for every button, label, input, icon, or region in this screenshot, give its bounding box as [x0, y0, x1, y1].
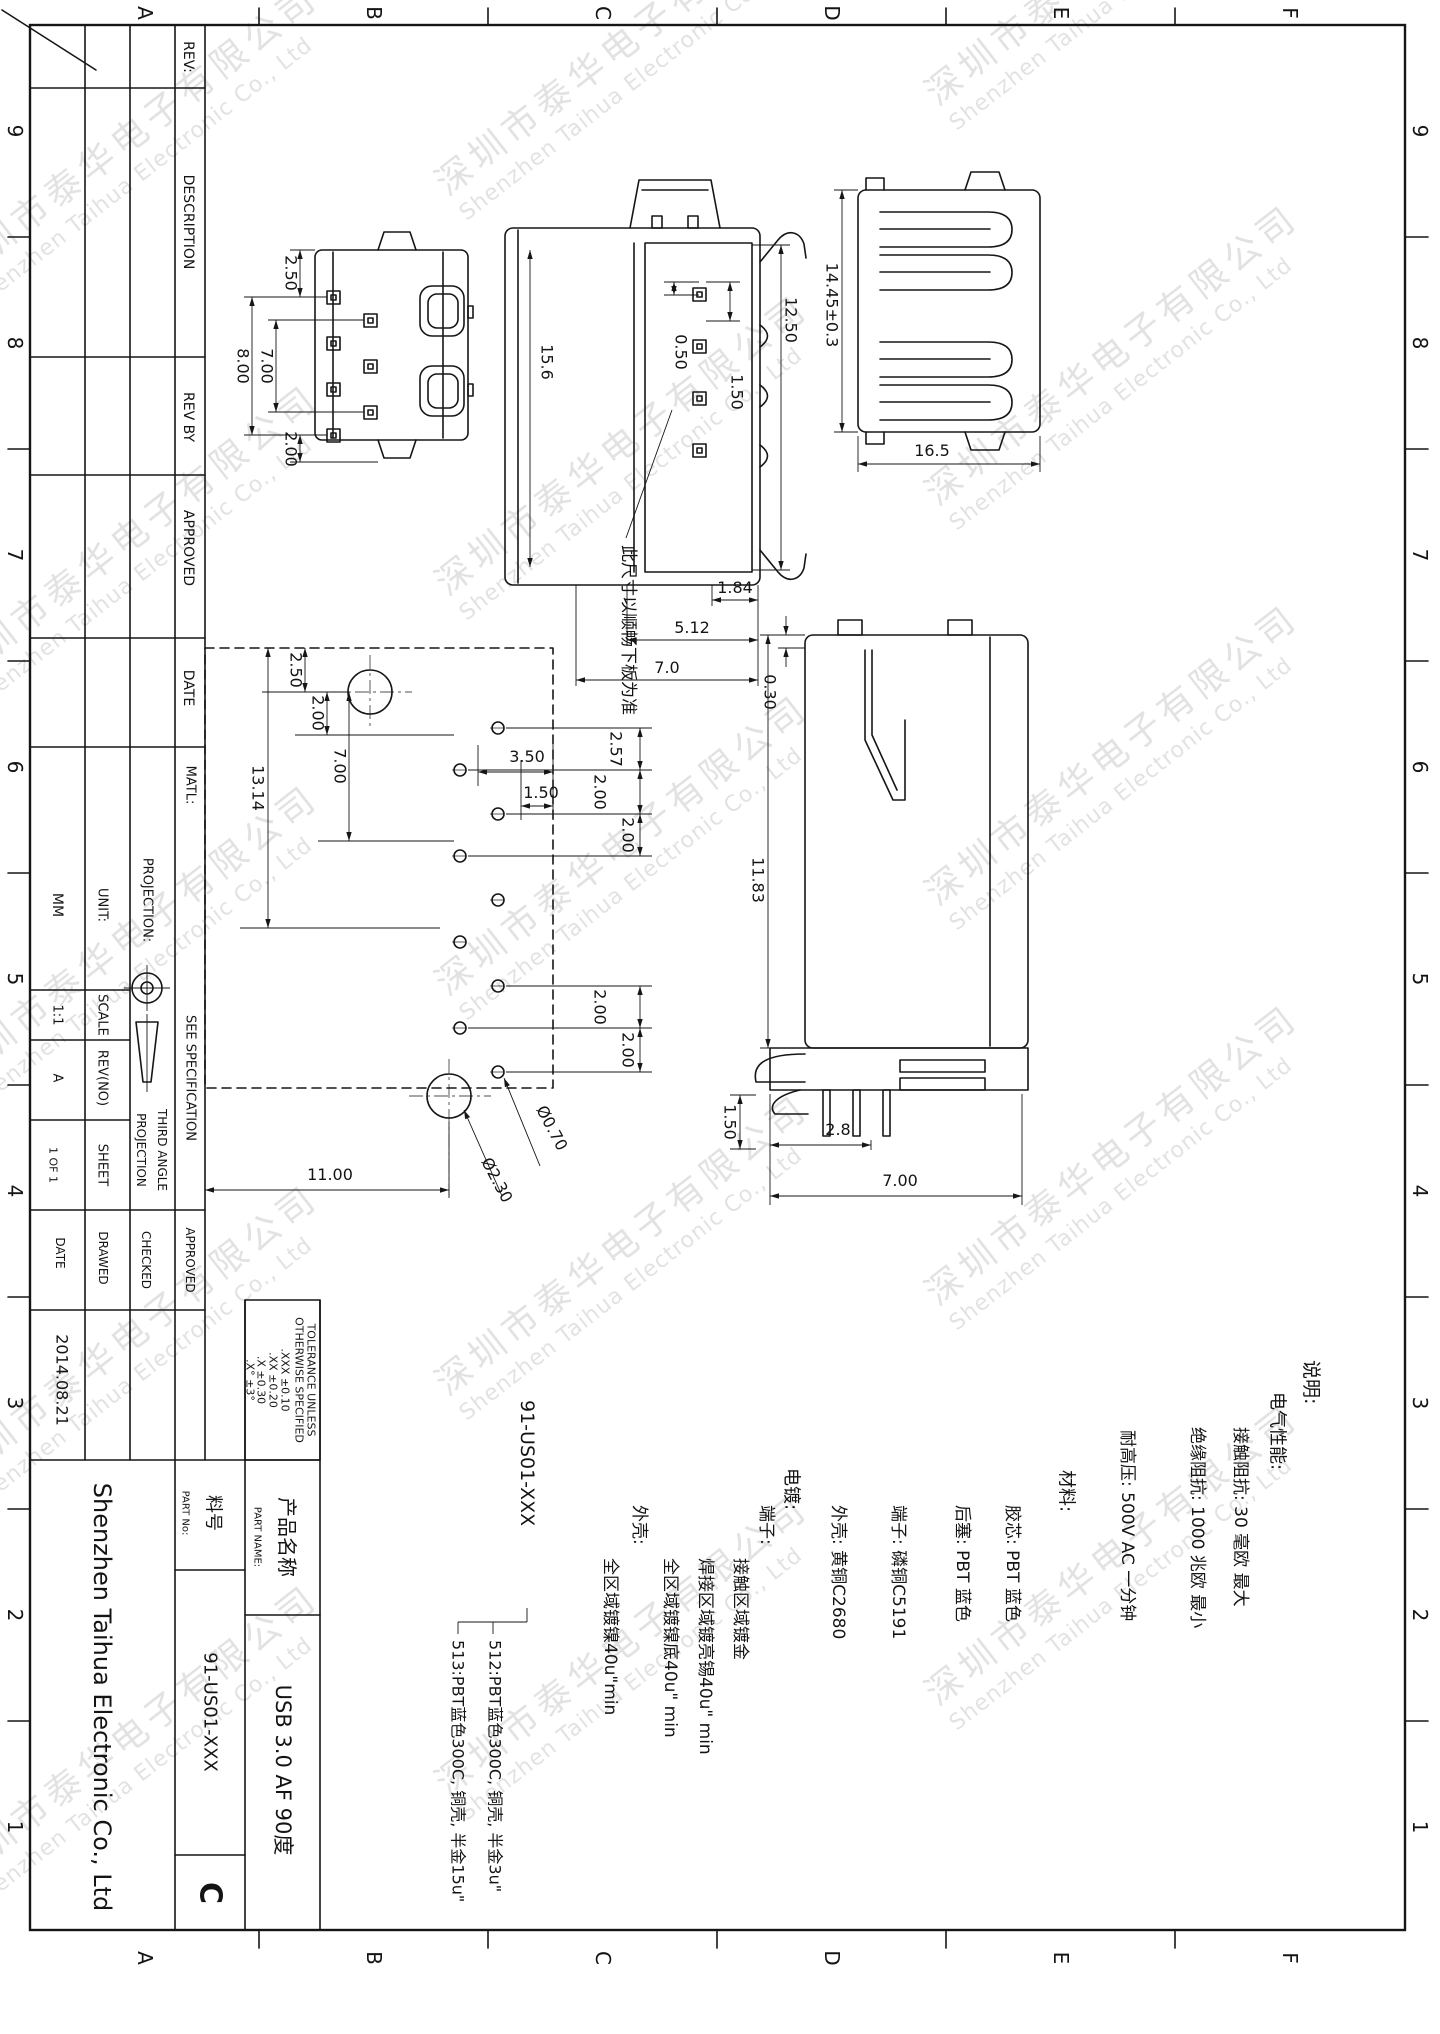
svg-text:端子: 磷铜C5191: 端子: 磷铜C5191	[888, 1505, 908, 1639]
dim: 2.50	[282, 255, 301, 291]
projection-label: PROJECTION:	[140, 858, 155, 942]
svg-text:.X° ±3°: .X° ±3°	[244, 1359, 257, 1401]
part-name-value: USB 3.0 AF 90度	[271, 1685, 295, 1856]
dim: 1.84	[717, 578, 753, 597]
dim: 2.00	[619, 1032, 638, 1068]
dim: 11.83	[749, 857, 768, 903]
svg-text:材料:: 材料:	[1056, 1470, 1077, 1512]
zone-number: 4	[3, 1185, 27, 1198]
zone-number: 2	[1408, 1609, 1432, 1622]
date-label: DATE	[53, 1237, 67, 1268]
dim: 2.57	[607, 731, 626, 767]
dim: 2.00	[591, 774, 610, 810]
dim: 1.50	[523, 783, 559, 802]
footprint-dimensions: 3.50 1.50 2.50 2.00 7.00 13.14	[205, 648, 652, 1206]
zone-letter: C	[591, 6, 615, 20]
svg-text:后塞: PBT 蓝色: 后塞: PBT 蓝色	[952, 1505, 972, 1622]
zone-number: 5	[1408, 973, 1432, 986]
zone-letter: D	[820, 1950, 844, 1965]
part-name-label-en: PART NAME:	[252, 1507, 263, 1567]
part-callout: 91-US01-XXX 512:PBT蓝色300C, 铜壳, 半金3u" 513…	[449, 1400, 539, 1902]
dim: 2.00	[282, 431, 301, 467]
dim: 0.30	[761, 674, 780, 710]
zone-letter: B	[362, 6, 386, 20]
zone-number: 1	[3, 1821, 27, 1834]
svg-text:电镀:: 电镀:	[781, 1468, 802, 1510]
variant-512: 512:PBT蓝色300C, 铜壳, 半金3u"	[486, 1640, 505, 1892]
rear-dimensions: 2.50 8.00 7.00 2.00	[234, 250, 379, 467]
svg-text:接触阻抗: 30 毫欧 最大: 接触阻抗: 30 毫欧 最大	[1230, 1427, 1250, 1607]
rear-view: 2.50 8.00 7.00 2.00	[234, 232, 474, 467]
drawing-canvas: A B C D E F A B C D E F 9 8 7 6 5 4 3 2 …	[0, 0, 1440, 2034]
part-no-label-cn: 料号	[203, 1495, 224, 1531]
revno-label: REV(NO)	[95, 1050, 110, 1106]
zone-letter: A	[133, 6, 157, 20]
svg-text:耐高压: 500V AC 一分钟: 耐高压: 500V AC 一分钟	[1117, 1430, 1137, 1621]
svg-text:外壳:: 外壳:	[629, 1505, 649, 1545]
third-angle-text-2: PROJECTION	[134, 1113, 148, 1187]
dim: 3.50	[509, 747, 545, 766]
drawing-sheet: 深圳市泰华电子有限公司Shenzhen Taihua Electronic Co…	[0, 0, 1440, 2034]
zone-number: 3	[3, 1397, 27, 1410]
zone-number: 2	[3, 1609, 27, 1622]
size-letter: C	[193, 1882, 228, 1904]
callout-code: 91-US01-XXX	[516, 1400, 538, 1526]
zone-letter: E	[1049, 1952, 1073, 1965]
date-header: DATE	[180, 670, 196, 706]
part-no-value: 91-US01-XXX	[200, 1652, 221, 1772]
zone-number: 6	[3, 761, 27, 774]
dim: Ø0.70	[532, 1102, 571, 1153]
scale-label: SCALE	[95, 994, 110, 1036]
svg-text:胶芯: PBT 蓝色: 胶芯: PBT 蓝色	[1002, 1505, 1022, 1622]
dim: 12.50	[782, 297, 801, 343]
leader-note-text: 此尺寸以顺畅下板为准	[618, 545, 638, 715]
svg-text:电气性能:: 电气性能:	[1267, 1392, 1288, 1470]
revby-header: REV BY	[180, 392, 196, 442]
unit-label: UNIT:	[95, 888, 110, 922]
dim: 7.0	[654, 658, 679, 677]
svg-text:全区域镀镍底40u" min: 全区域镀镍底40u" min	[660, 1558, 680, 1738]
svg-text:外壳: 黄铜C2680: 外壳: 黄铜C2680	[828, 1505, 848, 1639]
zone-number: 4	[1408, 1185, 1432, 1198]
third-angle-text-1: THIRD ANGLE	[155, 1108, 169, 1191]
dim: 13.14	[249, 765, 268, 811]
unit-value: MM	[49, 893, 65, 917]
zone-letter: C	[591, 1951, 615, 1965]
zone-letter: F	[1278, 7, 1302, 19]
svg-text:焊接区域镀亮锡40u" min: 焊接区域镀亮锡40u" min	[695, 1558, 715, 1755]
dim: 11.00	[307, 1165, 353, 1184]
dim: 1.50	[728, 374, 747, 410]
sheet-label: SHEET	[95, 1144, 110, 1186]
rev-header: REV:	[180, 41, 196, 73]
drawn-label: DRAWED	[96, 1231, 110, 1284]
third-angle-projection-icon	[124, 965, 170, 1092]
sheet-value: 1 OF 1	[47, 1147, 60, 1183]
dim: 7.00	[882, 1171, 918, 1190]
dim: 8.00	[234, 348, 253, 384]
date-value: 2014.08.21	[53, 1334, 72, 1426]
part-no-label-en: PART No:	[180, 1491, 191, 1536]
dim: 2.00	[619, 817, 638, 853]
side-dimensions: 14.45±0.3 16.5	[823, 190, 1041, 472]
dim: 2.8	[825, 1120, 850, 1139]
dim: 15.6	[538, 344, 557, 380]
notes-block: 说明: 电气性能: 接触阻抗: 30 毫欧 最大 绝缘阻抗: 1000 兆欧 最…	[600, 1360, 1322, 1755]
checked-label: CHECKED	[139, 1231, 153, 1289]
dim: 0.50	[672, 334, 691, 370]
zone-number: 7	[1408, 549, 1432, 562]
zone-number: 7	[3, 549, 27, 562]
dim: 2.50	[287, 652, 306, 688]
part-name-label-cn: 产品名称	[275, 1497, 299, 1577]
dim: 1.50	[721, 1104, 740, 1140]
dim: 16.5	[914, 441, 950, 460]
svg-text:端子:: 端子:	[756, 1505, 776, 1545]
footprint-pins	[452, 722, 506, 1078]
zone-letter: D	[820, 5, 844, 20]
dim: 7.00	[331, 748, 350, 784]
zone-number: 1	[1408, 1821, 1432, 1834]
dim: 2.00	[591, 989, 610, 1025]
variant-513: 513:PBT蓝色300C, 铜壳, 半金15u"	[449, 1640, 468, 1902]
svg-text:绝缘阻抗: 1000 兆欧 最小: 绝缘阻抗: 1000 兆欧 最小	[1187, 1427, 1207, 1628]
svg-text:全区域镀镍40u"min: 全区域镀镍40u"min	[600, 1558, 620, 1715]
dim: Ø2.30	[477, 1154, 516, 1205]
company-name: Shenzhen Taihua Electronic Co., Ltd	[88, 1483, 116, 1912]
zone-number: 5	[3, 973, 27, 986]
matl-label: MATL:	[183, 766, 198, 805]
zone-number: 8	[1408, 337, 1432, 350]
zone-number: 3	[1408, 1397, 1432, 1410]
svg-text:接触区域镀金: 接触区域镀金	[730, 1558, 750, 1660]
notes-title: 说明:	[1300, 1360, 1322, 1404]
front-contacts	[693, 288, 706, 457]
zone-letter: A	[133, 1951, 157, 1965]
approved-header: APPROVED	[180, 510, 196, 586]
revision-table: REV: DESCRIPTION REV BY APPROVED DATE	[30, 25, 205, 1930]
approved-label: APPROVED	[183, 1227, 197, 1292]
zone-letter: F	[1278, 1952, 1302, 1964]
svg-text:OTHERWISE SPECIFIED: OTHERWISE SPECIFIED	[293, 1317, 306, 1443]
side-view: 14.45±0.3 16.5	[823, 172, 1041, 472]
zone-number: 9	[1408, 125, 1432, 138]
matl-value: SEE SPECIFICATION	[183, 1015, 198, 1141]
description-header: DESCRIPTION	[180, 175, 196, 270]
tolerance-block: TOLERANCE UNLESS OTHERWISE SPECIFIED .XX…	[244, 1317, 318, 1443]
zone-letter: B	[362, 1951, 386, 1965]
dim: 14.45±0.3	[823, 263, 842, 348]
zone-number: 8	[3, 337, 27, 350]
scale-value: 1:1	[50, 1005, 65, 1026]
dim: 2.00	[309, 695, 328, 731]
dim: 7.00	[258, 348, 277, 384]
zone-number: 6	[1408, 761, 1432, 774]
revno-value: A	[50, 1074, 65, 1083]
rear-pads	[327, 291, 377, 442]
dim: 5.12	[674, 618, 710, 637]
profile-view: 0.30 11.83 1.50 2.8 7.00	[721, 616, 1029, 1205]
footprint-view: 3.50 1.50 2.50 2.00 7.00 13.14	[205, 648, 652, 1206]
zone-letter: E	[1049, 7, 1073, 20]
zone-number: 9	[3, 125, 27, 138]
